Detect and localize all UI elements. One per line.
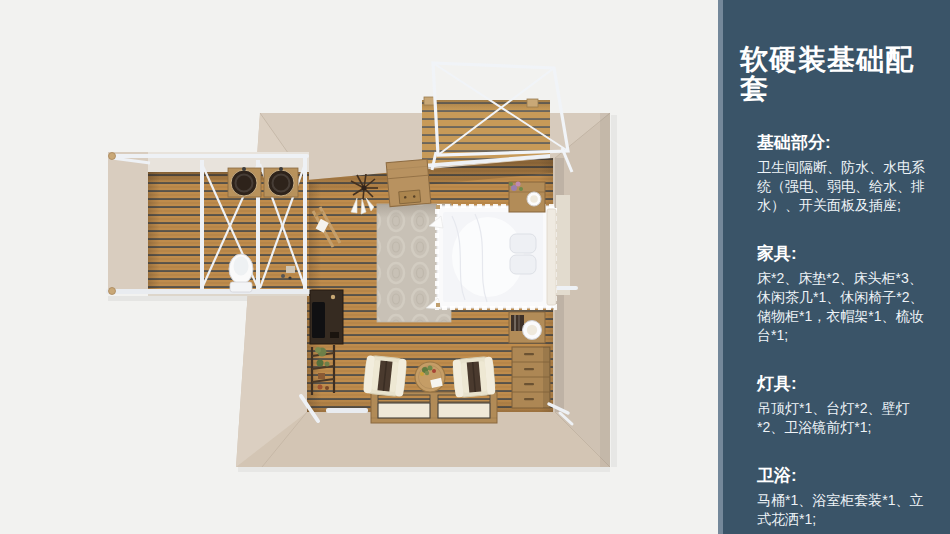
storage-cabinet — [386, 159, 431, 206]
frame-post — [109, 288, 116, 295]
nightstand-top — [509, 182, 545, 213]
slide: 软硬装基础配套 基础部分: 卫生间隔断、防水、水电系统（强电、弱电、给水、排水）… — [0, 0, 950, 534]
armchair-right — [452, 356, 495, 397]
panel-title: 软硬装基础配套 — [740, 45, 938, 104]
wall-panel — [556, 195, 570, 295]
bed — [426, 205, 578, 309]
section-heading: 卫浴: — [757, 464, 936, 487]
section-furniture: 家具: 床*2、床垫*2、床头柜*3、休闲茶几*1、休闲椅子*2、储物柜*1，衣… — [757, 242, 936, 345]
section-heading: 灯具: — [757, 372, 936, 395]
section-heading: 基础部分: — [757, 131, 936, 154]
section-body: 吊顶灯*1、台灯*2、壁灯*2、卫浴镜前灯*1; — [757, 399, 936, 437]
section-lighting: 灯具: 吊顶灯*1、台灯*2、壁灯*2、卫浴镜前灯*1; — [757, 372, 936, 437]
section-body: 马桶*1、浴室柜套装*1、立式花洒*1; — [757, 491, 936, 529]
floorplan-render — [0, 0, 718, 534]
info-panel: 软硬装基础配套 基础部分: 卫生间隔断、防水、水电系统（强电、弱电、给水、排水）… — [723, 0, 950, 534]
coffee-table — [415, 362, 445, 392]
nightstand-bottom — [509, 312, 545, 343]
dresser — [512, 347, 550, 408]
armchair-left — [363, 355, 407, 397]
section-body: 卫生间隔断、防水、水电系统（强电、弱电、给水、排水）、开关面板及插座; — [757, 158, 936, 215]
vanity-desk — [310, 290, 343, 344]
panel-sections: 基础部分: 卫生间隔断、防水、水电系统（强电、弱电、给水、排水）、开关面板及插座… — [757, 131, 936, 534]
section-basics: 基础部分: 卫生间隔断、防水、水电系统（强电、弱电、给水、排水）、开关面板及插座… — [757, 131, 936, 215]
toilet — [229, 254, 253, 292]
floor-windows — [371, 392, 497, 423]
baseboard-rail — [326, 408, 368, 413]
deck-post — [527, 99, 538, 107]
bathroom-extension — [106, 152, 312, 296]
section-heading: 家具: — [757, 242, 936, 265]
floorplan-area — [0, 0, 718, 534]
section-body: 床*2、床垫*2、床头柜*3、休闲茶几*1、休闲椅子*2、储物柜*1，衣帽架*1… — [757, 269, 936, 345]
section-bathroom: 卫浴: 马桶*1、浴室柜套装*1、立式花洒*1; — [757, 464, 936, 529]
frame-post — [109, 153, 116, 160]
